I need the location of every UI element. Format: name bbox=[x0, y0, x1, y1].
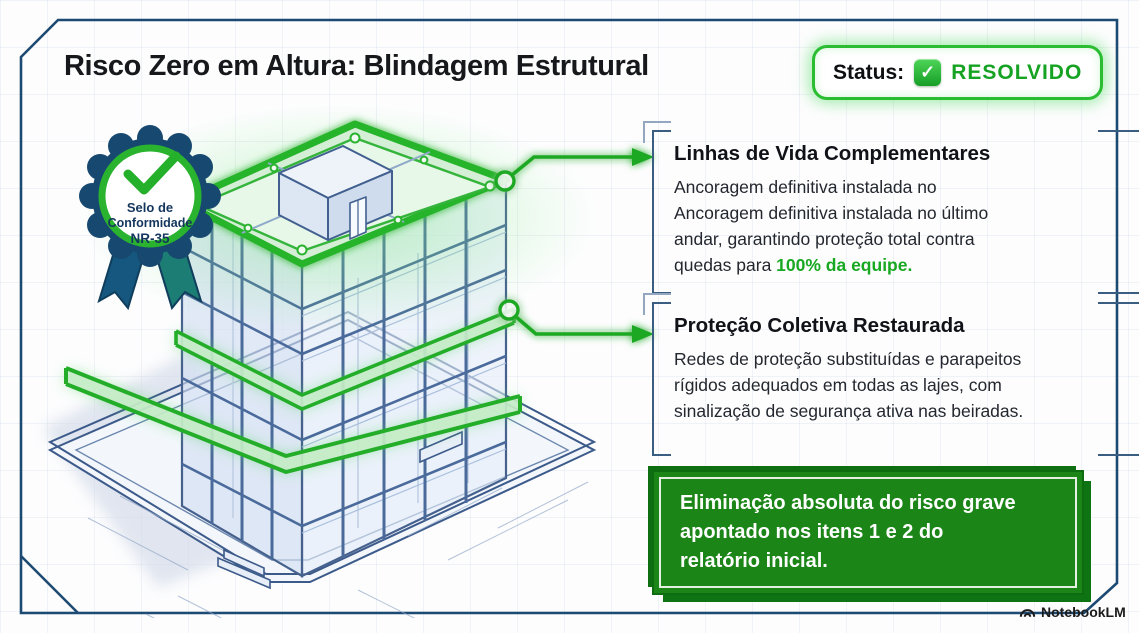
callout-body-line: Ancoragem definitiva instalada no último bbox=[674, 200, 1096, 226]
callout-title: Linhas de Vida Complementares bbox=[674, 142, 1096, 166]
callout-lifelines: Linhas de Vida Complementares Ancoragem … bbox=[652, 130, 1139, 294]
status-label: Status: bbox=[833, 61, 904, 85]
conformity-seal: Selo de Conformidade NR-35 bbox=[62, 112, 238, 318]
notebooklm-logo-icon bbox=[1019, 605, 1036, 620]
callout-body-line: sinalização de segurança ativa nas beira… bbox=[674, 398, 1096, 424]
bracket-corner-accent bbox=[643, 293, 671, 315]
result-text-line: apontado nos itens 1 e 2 do bbox=[680, 518, 1056, 547]
seal-text-2: Conformidade bbox=[108, 216, 193, 230]
callout-collective-protection: Proteção Coletiva Restaurada Redes de pr… bbox=[652, 302, 1139, 456]
watermark-text: NotebookLM bbox=[1041, 604, 1126, 620]
arrow-icon bbox=[632, 148, 654, 166]
seal-text-3: NR-35 bbox=[130, 231, 170, 246]
callout-body-line: Redes de proteção substituídas e parapei… bbox=[674, 346, 1096, 372]
anchor-connector-1 bbox=[496, 172, 514, 190]
bracket-left bbox=[652, 302, 671, 456]
callout-body-line: rígidos adequados em todas as lajes, com bbox=[674, 372, 1096, 398]
bracket-right bbox=[1098, 302, 1139, 456]
notebooklm-watermark: NotebookLM bbox=[1019, 604, 1126, 620]
result-text-line: Eliminação absoluta do risco grave bbox=[680, 489, 1056, 518]
page-title: Risco Zero em Altura: Blindagem Estrutur… bbox=[64, 50, 649, 83]
callout-body-line: andar, garantindo proteção total contra bbox=[674, 226, 1096, 252]
status-value: RESOLVIDO bbox=[951, 61, 1082, 85]
callout-title: Proteção Coletiva Restaurada bbox=[674, 314, 1096, 338]
leader-line-2 bbox=[500, 301, 654, 343]
anchor-connector-2 bbox=[500, 301, 518, 319]
bracket-corner-accent bbox=[643, 121, 671, 143]
infographic-canvas: Selo de Conformidade NR-35 Risco Zero em… bbox=[0, 0, 1139, 633]
check-icon: ✓ bbox=[914, 59, 941, 86]
bracket-left bbox=[652, 130, 671, 294]
result-box: Eliminação absoluta do risco grave apont… bbox=[652, 470, 1084, 595]
result-text-line: relatório inicial. bbox=[680, 547, 1056, 576]
callout-body-line: quedas para 100% da equipe. bbox=[674, 252, 1096, 278]
highlight-text: 100% da equipe. bbox=[776, 255, 912, 275]
bracket-right bbox=[1098, 130, 1139, 294]
seal-text-1: Selo de bbox=[127, 200, 173, 215]
callout-body-line: Ancoragem definitiva instalada no bbox=[674, 174, 1096, 200]
status-badge: Status: ✓ RESOLVIDO bbox=[812, 45, 1103, 100]
arrow-icon bbox=[632, 325, 654, 343]
